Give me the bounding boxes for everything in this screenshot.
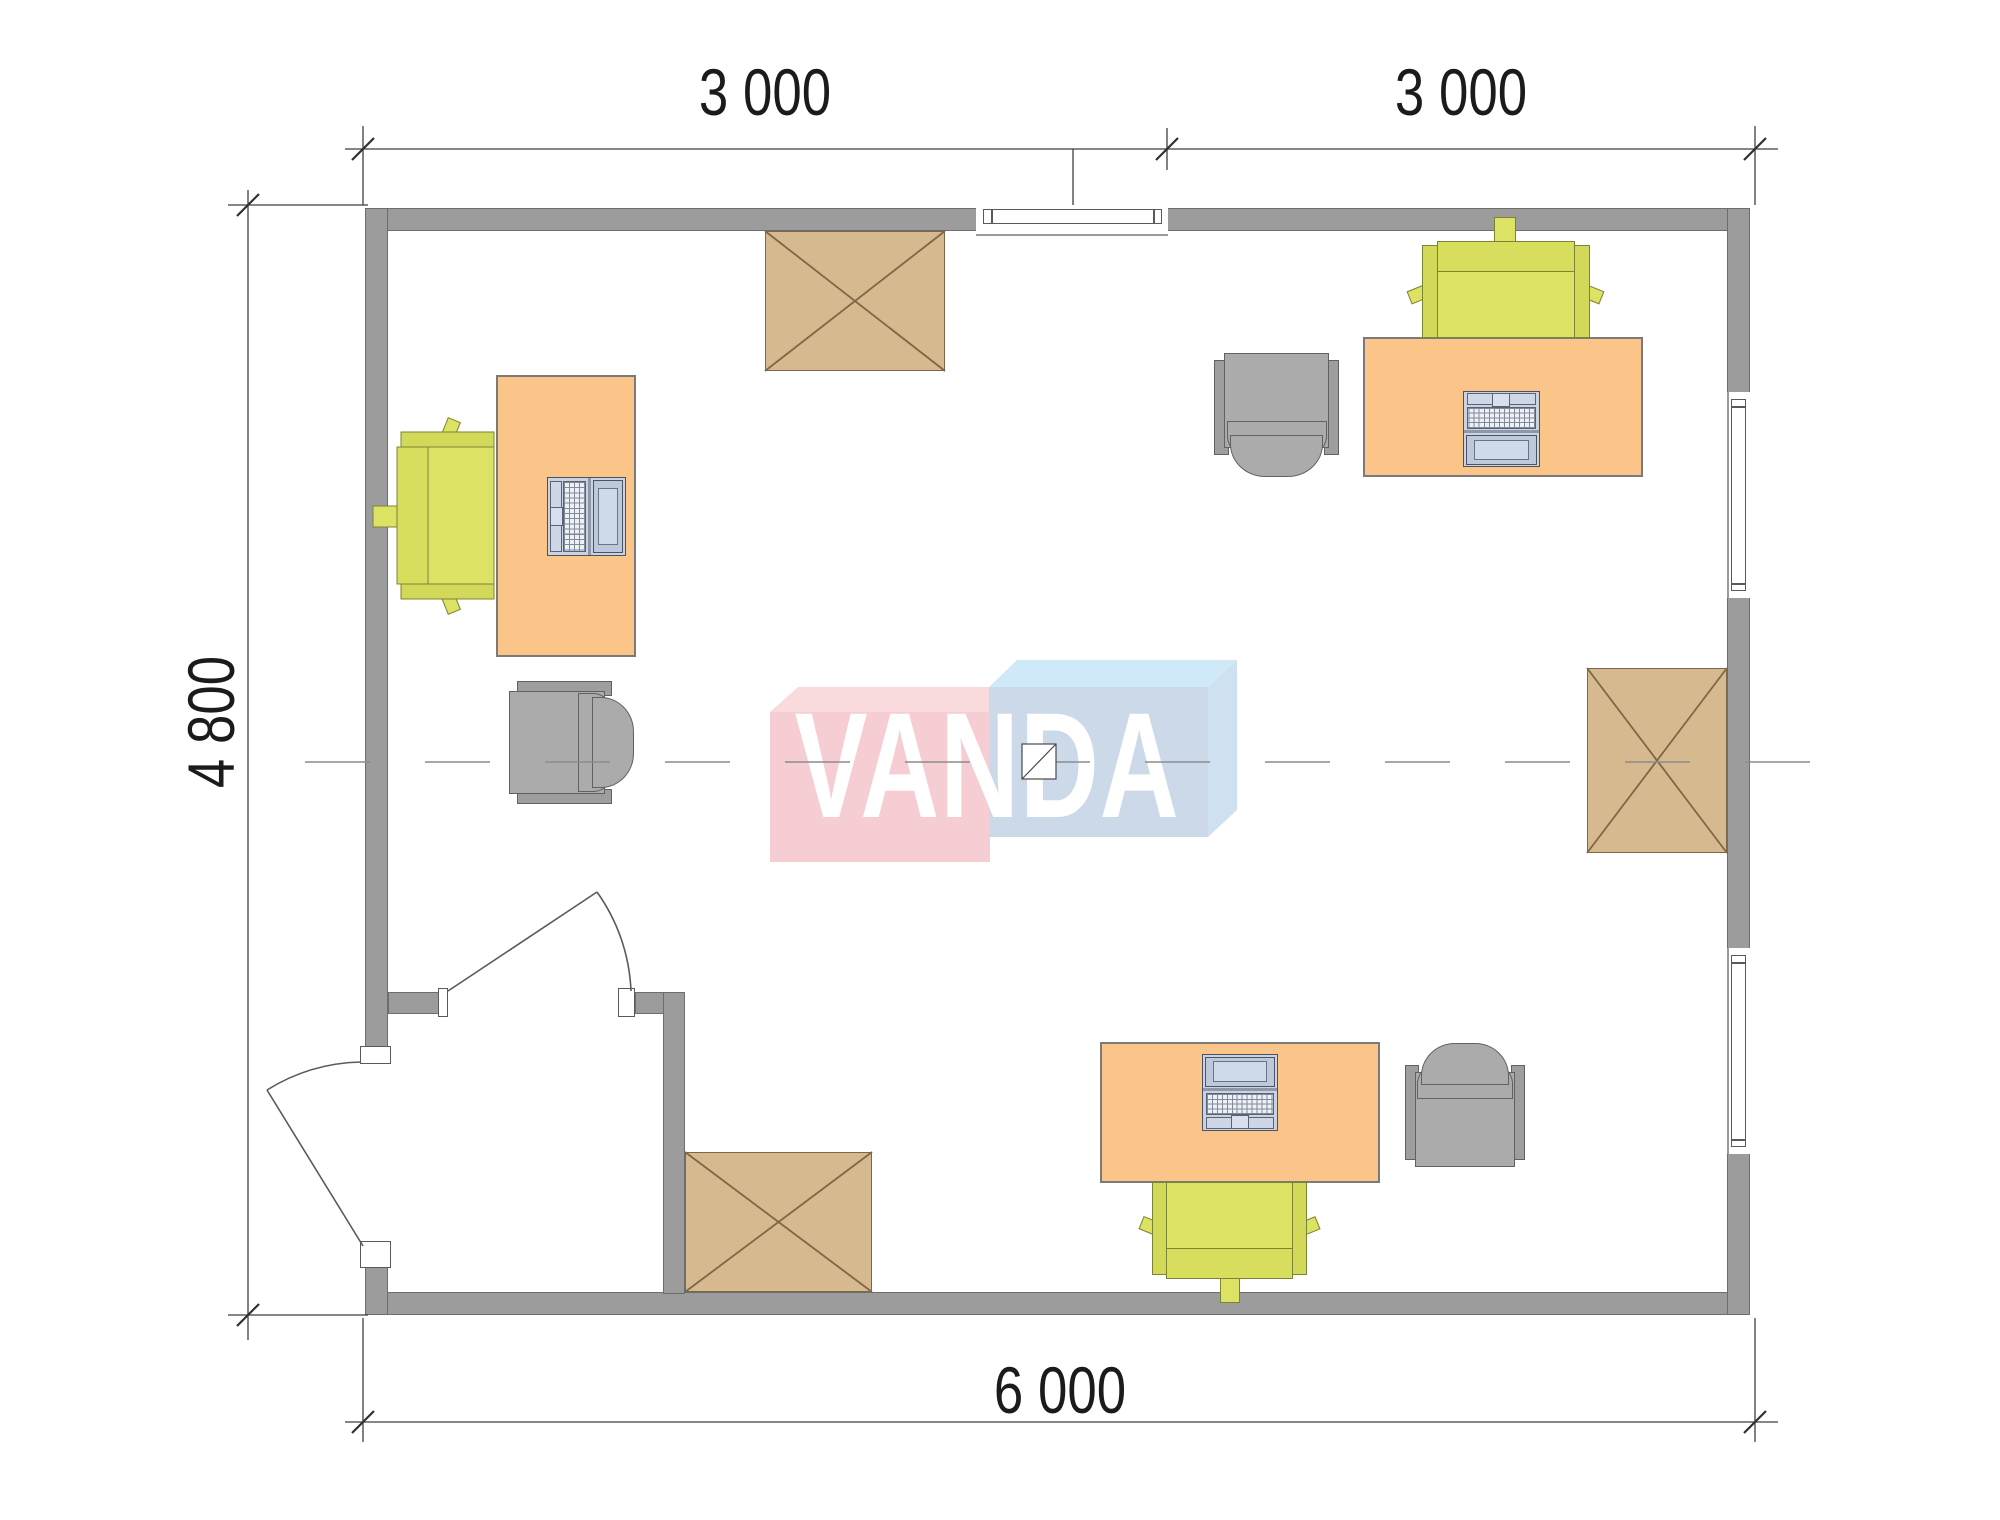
armchair-back-icon xyxy=(592,697,635,788)
laptop-top-right-icon xyxy=(1463,391,1540,467)
laptop-screen-icon xyxy=(1205,1057,1275,1087)
logo-text: VANDA xyxy=(795,690,1180,840)
laptop-keyboard-icon xyxy=(1206,1093,1274,1116)
laptop-display-icon xyxy=(1213,1061,1267,1081)
laptop-display-icon xyxy=(1474,440,1529,460)
laptop-trackpad-icon xyxy=(550,507,564,525)
chair-back-icon xyxy=(396,447,428,585)
interior-door-swing-icon xyxy=(448,892,631,991)
window-right-upper-sill xyxy=(1727,392,1729,598)
floor-plan-canvas: VANDA xyxy=(0,0,2000,1520)
laptop-display-icon xyxy=(598,488,619,544)
chair-seat-icon xyxy=(1166,1182,1293,1250)
armchair-left xyxy=(509,681,634,804)
dimension-left-label: 4 800 xyxy=(178,656,244,788)
laptop-hinge-icon xyxy=(1464,431,1539,434)
wall-bottom xyxy=(365,1292,1750,1315)
chair-seat-icon xyxy=(426,447,495,585)
armchair-top-right xyxy=(1214,353,1339,477)
task-chair-bottom xyxy=(1152,1182,1307,1290)
laptop-hinge-icon xyxy=(1203,1088,1277,1091)
laptop-bottom-icon xyxy=(1202,1054,1278,1131)
window-right-lower-frame xyxy=(1731,955,1746,1147)
armchair-bottom-right xyxy=(1405,1043,1525,1167)
laptop-hinge-icon xyxy=(588,478,591,555)
window-top-sill xyxy=(976,234,1168,236)
laptop-trackpad-icon xyxy=(1231,1115,1249,1129)
window-right-lower-mullion-bottom xyxy=(1731,1139,1746,1141)
window-top-frame xyxy=(983,209,1162,224)
entry-door-opening xyxy=(363,1063,390,1244)
interior-door-jamb-left xyxy=(438,988,448,1017)
entry-door-jamb-top xyxy=(360,1046,391,1064)
laptop-screen-icon xyxy=(593,480,624,552)
dimension-top-right-label: 3 000 xyxy=(1395,59,1527,125)
chair-back-icon xyxy=(1437,241,1575,272)
window-right-upper-frame xyxy=(1731,399,1746,591)
table-bottom xyxy=(685,1152,872,1292)
dimension-bottom-label: 6 000 xyxy=(994,1357,1126,1423)
interior-door-jamb-right xyxy=(618,988,635,1017)
laptop-left-icon xyxy=(547,477,626,556)
laptop-trackpad-icon xyxy=(1493,394,1511,407)
window-right-lower-mullion-top xyxy=(1731,962,1746,964)
window-right-lower-sill xyxy=(1727,948,1729,1154)
task-chair-left xyxy=(386,432,495,600)
window-right-upper-mullion-bottom xyxy=(1731,583,1746,585)
entry-door-swing-icon xyxy=(267,1062,363,1246)
chair-back-icon xyxy=(1166,1248,1293,1279)
logo-blue-side-face xyxy=(1208,660,1237,837)
entry-door-jamb-bottom xyxy=(360,1241,391,1268)
table-top xyxy=(765,231,945,371)
armchair-back-icon xyxy=(1421,1043,1510,1085)
partition-wall-vertical xyxy=(663,992,685,1294)
armchair-back-icon xyxy=(1230,435,1323,477)
window-top-mullion-right xyxy=(1153,209,1155,224)
partition-stub-left xyxy=(388,992,440,1014)
laptop-screen-icon xyxy=(1466,435,1537,465)
window-right-upper-mullion-top xyxy=(1731,406,1746,408)
chair-seat-icon xyxy=(1437,270,1575,338)
laptop-keyboard-icon xyxy=(563,481,586,552)
window-top-mullion-left xyxy=(991,209,993,224)
laptop-keyboard-icon xyxy=(1467,407,1536,429)
task-chair-top-right xyxy=(1422,230,1590,338)
dimension-top-left-label: 3 000 xyxy=(699,59,831,125)
table-right xyxy=(1587,668,1727,853)
